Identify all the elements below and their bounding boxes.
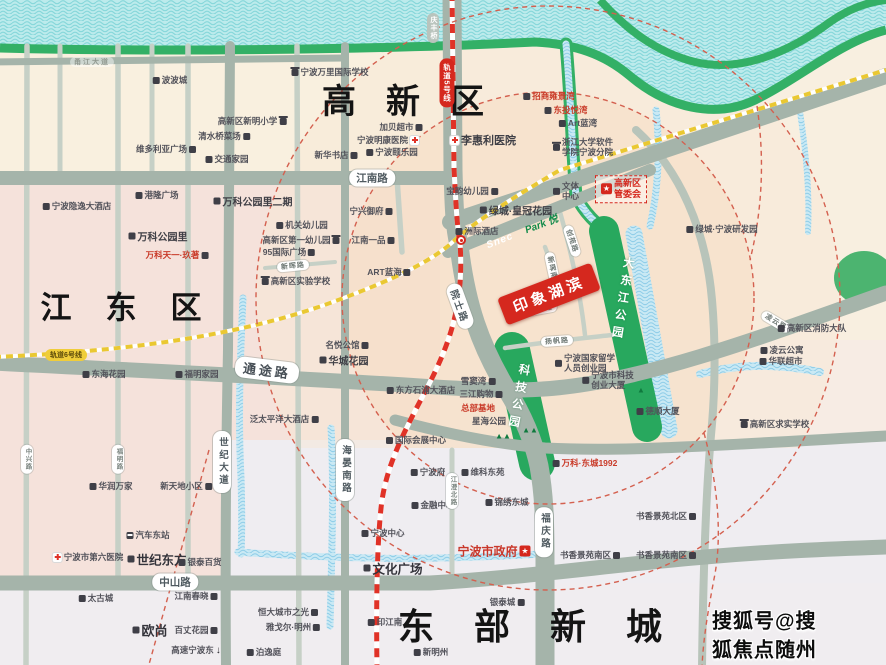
poi-label: 名悦公馆: [325, 339, 368, 351]
school-icon: [262, 278, 269, 285]
building-icon: [386, 437, 393, 444]
building-icon: [559, 120, 566, 127]
poi-label: 新华书店: [314, 149, 357, 161]
poi-label: 机关幼儿园: [276, 219, 328, 231]
poi-label: 科技公园: [503, 362, 532, 434]
poi-label: 宁波颐乐园: [366, 146, 418, 158]
building-icon: [496, 391, 503, 398]
poi-label: 三江购物: [459, 388, 502, 400]
poi-label: 恒大城市之光: [258, 606, 318, 618]
hospital-icon: [450, 136, 459, 145]
building-icon: [582, 377, 589, 384]
building-icon: [243, 133, 250, 140]
government-star-icon: [520, 546, 531, 557]
building-icon: [311, 609, 318, 616]
poi-label: 太古城: [79, 592, 114, 604]
building-icon: [613, 552, 620, 559]
building-icon: [189, 146, 196, 153]
district-name: 东部新城: [398, 609, 702, 645]
building-icon: [414, 649, 421, 656]
poi-label: 泊逸庭: [247, 646, 282, 658]
building-icon: [247, 649, 254, 656]
building-icon: [544, 107, 551, 114]
building-icon: [205, 156, 212, 163]
poi-label: 李惠利医院: [450, 132, 516, 148]
government-star-icon: [601, 184, 612, 195]
building-icon: [689, 552, 696, 559]
poi-label: 雪窦湾: [461, 375, 496, 387]
poi-label: 万科天一·玖著: [146, 249, 209, 261]
school-icon: [553, 144, 560, 151]
building-icon: [387, 387, 394, 394]
building-icon: [461, 469, 468, 476]
road-label: 中山路: [152, 574, 198, 591]
road-label: 海晏南路: [336, 439, 354, 501]
poi-label: 江南一品: [351, 234, 394, 246]
road-label: 世纪大道: [213, 431, 231, 493]
building-icon: [351, 152, 358, 159]
poi-label: 高新区消防大队: [778, 322, 847, 334]
poi-label: 大东江公园: [607, 256, 636, 345]
poi-label: 银泰城: [490, 596, 525, 608]
poi-label: 高新区第一幼儿园: [262, 234, 339, 246]
road-label: 江澄北路: [446, 473, 458, 509]
building-icon: [211, 593, 218, 600]
building-icon: [311, 416, 318, 423]
poi-label: 宁波市科技 创业大厦: [582, 370, 634, 390]
poi-label: 万科公园里: [129, 229, 188, 244]
building-icon: [760, 347, 767, 354]
poi-label: 宁兴御府: [349, 205, 392, 217]
road-label: 福庆路: [535, 507, 553, 557]
school-icon: [291, 69, 298, 76]
poi-label: 新明州: [414, 646, 449, 658]
road-label: 江南路: [349, 170, 395, 187]
poi-label: 高新区实验学校: [262, 275, 331, 287]
building-icon: [388, 237, 395, 244]
tree-icons: ▲▲: [495, 432, 511, 441]
building-icon: [455, 228, 462, 235]
poi-label: 新天地小区: [160, 480, 212, 492]
poi-label: 宁波隐逸大酒店: [43, 200, 112, 212]
building-icon: [153, 77, 160, 84]
building-icon: [555, 360, 562, 367]
road-label: 庆丰桥: [427, 13, 439, 43]
poi-label: 国际会展中心: [386, 434, 446, 446]
poi-label: 福明家园: [175, 368, 218, 380]
building-icon: [127, 556, 134, 563]
poi-label: 泛太平洋大酒店: [250, 413, 319, 425]
building-icon: [178, 559, 185, 566]
district-name: 江东区: [41, 293, 236, 324]
building-icon: [517, 599, 524, 606]
building-icon: [201, 252, 208, 259]
building-icon: [89, 483, 96, 490]
poi-label: 东投悦湾: [544, 104, 587, 116]
poi-label: 银泰百货: [178, 556, 221, 568]
poi-label: 加贝超市: [379, 121, 422, 133]
building-icon: [175, 371, 182, 378]
poi-label: 百丈花园: [174, 624, 217, 636]
building-icon: [368, 619, 375, 626]
road-label: 扬帆路: [541, 335, 574, 347]
poi-label: 宁波市政府: [457, 543, 530, 560]
poi-label: 万科公园里二期: [214, 194, 293, 209]
poi-label: 维多利亚广场: [136, 143, 196, 155]
building-icon: [79, 595, 86, 602]
building-icon: [411, 502, 418, 509]
poi-label: 欧尚: [132, 621, 167, 640]
poi-label: 高速宁波东: [171, 644, 221, 656]
building-icon: [82, 371, 89, 378]
poi-label: 宁波市第六医院: [53, 551, 124, 563]
metro-interchange: [456, 235, 466, 245]
building-icon: [129, 233, 136, 240]
poi-label: 汽车东站: [126, 529, 169, 541]
road-label: 院士路: [445, 281, 476, 330]
poi-label: 东海花园: [82, 368, 125, 380]
road-label: 轨道5号线: [440, 58, 455, 107]
poi-label: 宁波府: [411, 466, 446, 478]
building-icon: [308, 249, 315, 256]
poi-label: 维科东苑: [461, 466, 504, 478]
poi-label: 江南春晓: [174, 590, 217, 602]
poi-label: 文体 中心: [553, 181, 579, 201]
building-icon: [553, 460, 560, 467]
building-icon: [411, 469, 418, 476]
building-icon: [636, 408, 643, 415]
poi-label: 华城花园: [320, 353, 369, 368]
building-icon: [485, 499, 492, 506]
poi-label: 书香景苑北区: [636, 510, 696, 522]
building-icon: [523, 93, 530, 100]
building-icon: [205, 483, 212, 490]
poi-label: 华润万家: [89, 480, 132, 492]
hospital-icon: [53, 553, 62, 562]
poi-label: 高新区新明小学: [218, 115, 287, 127]
building-icon: [778, 325, 785, 332]
building-icon: [366, 149, 373, 156]
road-label: 通途路: [234, 356, 300, 385]
building-icon: [491, 188, 498, 195]
building-icon: [132, 627, 139, 634]
poi-label: 星海公园: [472, 415, 506, 427]
poi-label: 甬江大道: [70, 57, 114, 67]
down-arrow-icon: [216, 645, 221, 656]
building-icon: [416, 124, 423, 131]
poi-label: 总部基地: [461, 402, 495, 414]
building-icon: [689, 513, 696, 520]
poi-label: 东方石浦大酒店: [387, 384, 456, 396]
poi-label: 雅戈尔·明州: [266, 621, 320, 633]
building-icon: [386, 208, 393, 215]
school-icon: [741, 421, 748, 428]
building-icon: [320, 357, 327, 364]
metro-station-icon: [456, 235, 466, 245]
poi-label: 宁波明康医院: [357, 134, 419, 146]
poi-label: 波波城: [153, 74, 188, 86]
building-icon: [363, 565, 370, 572]
road-label: 创苑路: [562, 224, 581, 258]
poi-label: 书香景苑南区: [636, 549, 696, 561]
poi-label: 德顺大厦: [636, 405, 679, 417]
poi-label: 95国际广场: [263, 246, 315, 258]
map-canvas: 甬江大道波波城宁波万里国际学校高新区新明小学清水桥菜场维多利亚广场交通家园港隆广…: [0, 0, 886, 665]
poi-label: 清水桥菜场: [198, 130, 250, 142]
building-icon: [135, 192, 142, 199]
poi-label: 宁波万里国际学校: [291, 66, 368, 78]
poi-label: 宝韵幼儿园: [446, 185, 498, 197]
poi-label: 高新区 管委会: [595, 175, 647, 203]
building-icon: [480, 207, 487, 214]
poi-label: 交通家园: [205, 153, 248, 165]
district-name: 高新区: [322, 85, 514, 119]
poi-label: 万科·东城1992: [553, 457, 618, 469]
labels-layer: 甬江大道波波城宁波万里国际学校高新区新明小学清水桥菜场维多利亚广场交通家园港隆广…: [0, 0, 886, 665]
poi-label: 书香景苑南区: [560, 549, 620, 561]
building-icon: [488, 378, 495, 385]
poi-label: 绿城·宁波研发园: [686, 223, 757, 235]
building-icon: [553, 188, 560, 195]
building-icon: [43, 203, 50, 210]
poi-label: ART蓝海: [367, 266, 410, 278]
poi-label: 华联超市: [759, 355, 802, 367]
building-icon: [211, 627, 218, 634]
poi-label: 宁波中心: [361, 527, 404, 539]
building-icon: [361, 530, 368, 537]
school-icon: [279, 118, 286, 125]
road-label: 新晖路: [277, 259, 310, 272]
poi-label: 招商雍景湾: [523, 90, 575, 102]
poi-label: 高新区求实学校: [741, 418, 810, 430]
poi-label: Art蓝湾: [559, 117, 597, 129]
building-icon: [313, 624, 320, 631]
poi-label: 文化广场: [363, 559, 422, 578]
road-label: 福明路: [112, 445, 124, 474]
building-icon: [686, 226, 693, 233]
poi-label: 锦绣东城: [485, 496, 528, 508]
tree-icons: ▲▲: [522, 426, 538, 435]
hospital-icon: [410, 136, 419, 145]
building-icon: [362, 342, 369, 349]
building-icon: [276, 222, 283, 229]
school-icon: [333, 237, 340, 244]
bus-icon: [126, 532, 133, 539]
building-icon: [214, 198, 221, 205]
poi-label: 港隆广场: [135, 189, 178, 201]
road-label: 轨道6号线: [45, 349, 87, 361]
tree-icons: ▲: [637, 386, 645, 395]
building-icon: [404, 269, 411, 276]
poi-label: 浙江大学软件 学院宁波分院: [553, 137, 613, 157]
road-label: 中兴路: [21, 445, 33, 474]
watermark: 搜狐号@搜狐焦点随州站: [712, 605, 828, 665]
building-icon: [759, 358, 766, 365]
